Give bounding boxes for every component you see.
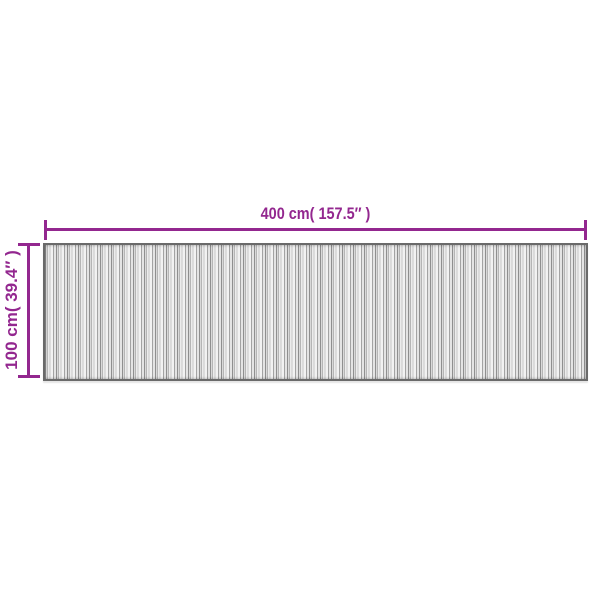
width-dimension-end-tick-left bbox=[44, 220, 47, 240]
height-dimension-label: 100 cm( 39.4″ ) bbox=[1, 230, 23, 390]
product-dimension-diagram: 400 cm( 157.5″ ) 100 cm( 39.4″ ) bbox=[0, 0, 600, 600]
height-dimension-line bbox=[27, 243, 30, 378]
height-dimension-end-tick-top bbox=[18, 243, 40, 246]
width-dimension-end-tick-right bbox=[584, 220, 587, 240]
width-dimension-label: 400 cm( 157.5″ ) bbox=[85, 203, 547, 225]
height-dimension-end-tick-bottom bbox=[18, 375, 40, 378]
width-dimension-line bbox=[44, 228, 587, 231]
rug-graphic bbox=[43, 243, 588, 381]
